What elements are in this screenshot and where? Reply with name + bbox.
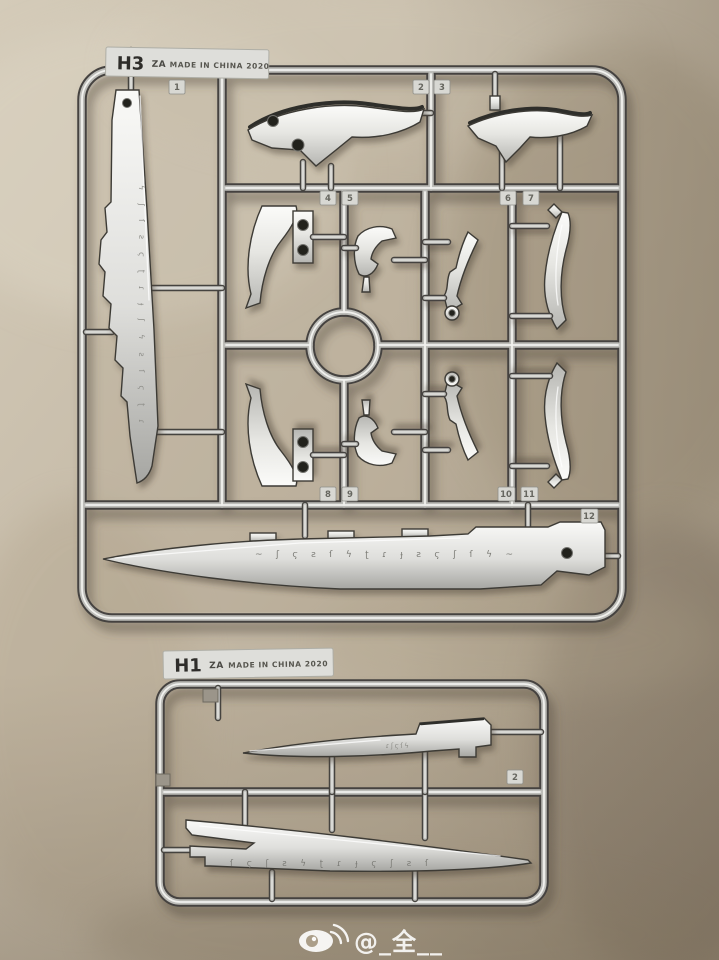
svg-text:7: 7: [528, 194, 534, 204]
runner-clip-tab: [156, 774, 170, 786]
h3-code-label: H3: [117, 53, 145, 74]
part-number-tag: 5: [342, 191, 358, 205]
part-number-tag: 4: [320, 191, 336, 205]
h3-brand-label: ZA: [152, 60, 167, 70]
photo-canvas: ϟʃſƨϛʈɾɟʃϟƨſϛʈɾ: [0, 0, 719, 960]
svg-text:5: 5: [347, 194, 353, 204]
part-number-tag: 11: [521, 487, 538, 501]
svg-text:4: 4: [325, 194, 331, 204]
h3-label-tab: H3 ZA MADE IN CHINA 2020: [105, 47, 269, 79]
svg-text:1: 1: [174, 83, 180, 93]
h1-code-label: H1: [174, 655, 202, 676]
part-number-tag: 1: [169, 80, 185, 94]
part-number-tag: 2: [507, 770, 523, 784]
svg-text:6: 6: [505, 194, 511, 204]
part-number-tag: 7: [523, 191, 539, 205]
watermark-handle: @_全__: [354, 928, 443, 956]
svg-text:11: 11: [523, 490, 535, 500]
h1-label-tab: H1 ZA MADE IN CHINA 2020: [163, 648, 333, 679]
runner-h1: ɾʃϛſϟ ſϛʃƨϟʈɾɟϛʃƨſ H1 ZA MADE IN CHINA 2…: [156, 648, 544, 902]
svg-text:2: 2: [512, 773, 518, 783]
svg-text:10: 10: [500, 490, 512, 500]
part-number-tag: 10: [498, 487, 515, 501]
svg-text:3: 3: [439, 83, 445, 93]
part-number-tag: 2: [413, 80, 429, 94]
h1-origin-label: MADE IN CHINA 2020: [228, 659, 328, 670]
part-number-tag: 8: [320, 487, 336, 501]
part-number-tag: 3: [434, 80, 450, 94]
sword-engraving: ϟʃſƨϛʈɾɟʃϟƨſϛʈɾ: [137, 185, 146, 425]
part-number-tag: 9: [342, 487, 358, 501]
part-number-tag: 6: [500, 191, 516, 205]
h1-brand-label: ZA: [209, 661, 224, 671]
runner-clip-tab: [203, 689, 218, 702]
photo-svg: ϟʃſƨϛʈɾɟʃϟƨſϛʈɾ: [0, 0, 719, 960]
runner-h3: ϟʃſƨϛʈɾɟʃϟƨſϛʈɾ: [82, 47, 622, 618]
h3-origin-label: MADE IN CHINA 2020: [170, 60, 270, 71]
svg-text:2: 2: [418, 83, 424, 93]
knife-engraving: ɾʃϛſϟ: [386, 742, 411, 750]
svg-text:12: 12: [583, 512, 595, 522]
part-number-tag: 12: [581, 509, 598, 523]
svg-text:9: 9: [347, 490, 353, 500]
svg-text:8: 8: [325, 490, 331, 500]
